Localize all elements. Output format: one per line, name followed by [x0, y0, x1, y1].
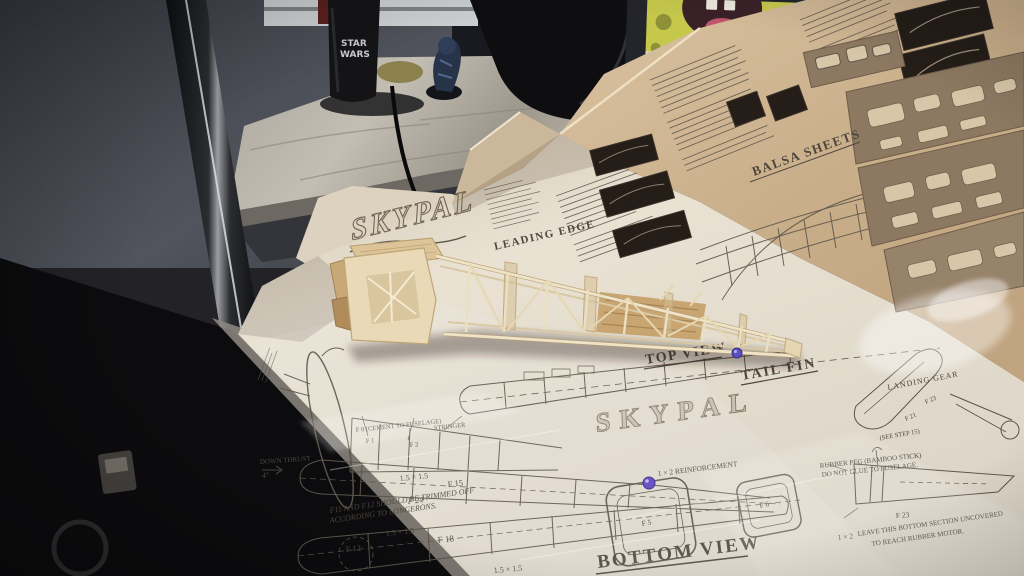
scene-canvas: STAR WARS: [0, 0, 1024, 576]
photo-vignette: [0, 0, 1024, 576]
photo-scene: STAR WARS: [0, 0, 1024, 576]
